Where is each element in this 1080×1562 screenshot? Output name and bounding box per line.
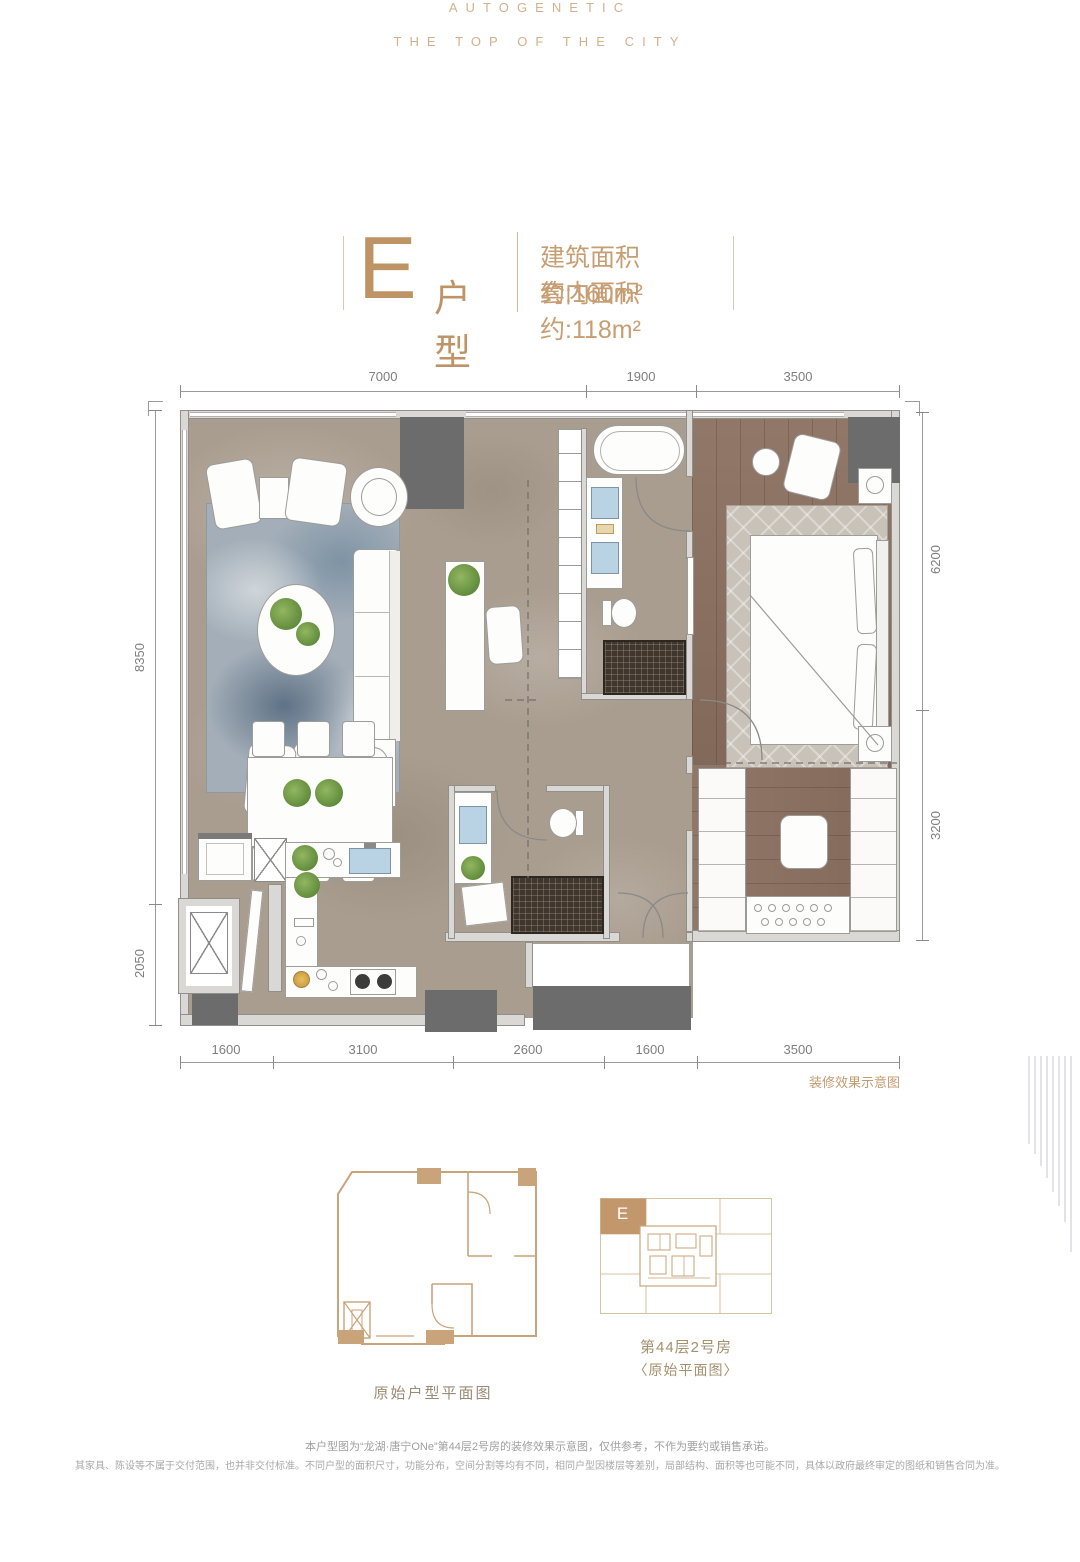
brand-line2: THE TOP OF THE CITY [0, 34, 1080, 49]
key-plan-unit-letter: E [600, 1204, 646, 1224]
dim-top-1900: 1900 [621, 369, 661, 384]
dim-bottom-3500: 3500 [778, 1042, 818, 1057]
dim-tick [697, 1056, 698, 1069]
bath2-wall-top-a [448, 785, 496, 792]
counter-item [296, 936, 306, 946]
bath2-wall-top-b [546, 785, 610, 792]
bath2-wall-right [603, 785, 610, 939]
original-plan-label: 原始户型平面图 [322, 1382, 544, 1403]
sofa-cushion-line-2 [355, 676, 389, 677]
disclaimer-line2: 其家具、陈设等不属于交付范围，也并非交付标准。不同户型的面积尺寸，功能分布，空间… [0, 1457, 1080, 1472]
deco-line [1034, 1056, 1036, 1154]
crop-mark-right [905, 401, 920, 402]
unit-letter: E [358, 222, 417, 314]
shoe-item [796, 904, 804, 912]
counter-item [328, 981, 338, 991]
bath1-wall-right-b [686, 531, 693, 559]
dim-tick [180, 385, 181, 398]
kitchen-plant-1 [292, 845, 318, 871]
cloakroom-shoe-unit [746, 896, 850, 934]
disclaimer-line1: 本户型图为“龙湖·唐宁ONe”第44层2号房的装修效果示意图，仅供参考，不作为要… [0, 1438, 1080, 1454]
counter-item [294, 918, 314, 927]
dim-left-8350: 8350 [132, 632, 147, 684]
kitchen-sink [349, 848, 391, 874]
edge-line-decoration [1028, 1056, 1078, 1266]
deco-line [1040, 1056, 1042, 1166]
bath1-sink-1 [591, 487, 619, 519]
wardrobe-right [850, 768, 897, 932]
dim-right-6200: 6200 [928, 534, 943, 586]
title-rule-left [343, 236, 344, 310]
render-note: 装修效果示意图 [770, 1072, 900, 1091]
study-desk-plant [448, 564, 480, 596]
dim-tick [273, 1056, 274, 1069]
counter-item [323, 848, 335, 860]
washing-machine-top [198, 833, 252, 839]
cloakroom-island [780, 815, 828, 869]
dim-bottom-1600b: 1600 [630, 1042, 670, 1057]
bath1-wall-right-c [686, 634, 693, 700]
dim-line-bottom [180, 1062, 900, 1063]
bath2-shower-mat [511, 876, 604, 934]
column-bottom-core [533, 986, 691, 1030]
bath2-sink [459, 806, 487, 844]
shoe-item [810, 904, 818, 912]
dining-chair-1 [252, 721, 285, 757]
bath1-toilet-bowl [611, 598, 637, 628]
armchair-2 [284, 456, 348, 527]
kitchen-wall-stub [268, 884, 282, 992]
crop-mark-left-v [148, 401, 149, 416]
bath1-wall-right-a [686, 410, 693, 477]
bath2-plant [461, 856, 485, 880]
dim-line-top [180, 391, 900, 392]
deco-line [1070, 1056, 1072, 1252]
counter-item [333, 858, 342, 867]
dim-tick [916, 710, 929, 711]
bedroom-side-table [752, 448, 780, 476]
deco-line [1046, 1056, 1048, 1178]
sofa-back [389, 551, 400, 741]
nightstand-lamp-1 [866, 476, 884, 494]
column-bottom-kitchen [425, 990, 497, 1032]
wall-lobby-left [525, 942, 533, 988]
egg-chair-ring [361, 478, 397, 516]
shoe-item [768, 904, 776, 912]
key-plan-sub-label: 〈原始平面图〉 [586, 1360, 786, 1380]
key-plan-room-label: 第44层2号房 [586, 1336, 786, 1357]
original-plan-drawing [322, 1164, 544, 1360]
title-rule-mid [517, 232, 518, 312]
shoe-item [789, 918, 797, 926]
dim-tick [149, 410, 162, 411]
bedroom-sliding-door [687, 557, 694, 635]
stove-burner-2 [377, 974, 392, 989]
study-chair [485, 605, 524, 665]
bed-headboard [876, 540, 889, 740]
shoe-item [817, 918, 825, 926]
unit-label: 户型 [434, 268, 471, 376]
bathtub-inner [600, 431, 680, 471]
stove-burner-1 [355, 974, 370, 989]
dim-tick [696, 385, 697, 398]
counter-item [316, 969, 327, 980]
key-plan: E 第44层2号房 〈原始平面图〉 [600, 1198, 772, 1319]
dim-right-3200: 3200 [928, 800, 943, 852]
shoe-item [775, 918, 783, 926]
dim-left-2050: 2050 [132, 938, 147, 990]
washing-machine-door [206, 843, 244, 875]
brand-line1: AUTOGENETIC [0, 0, 1080, 15]
deco-line [1058, 1056, 1060, 1206]
elevator-x [190, 912, 228, 974]
dim-tick [916, 940, 929, 941]
bath1-sink-2 [591, 542, 619, 574]
dim-tick [899, 1056, 900, 1069]
dim-tick [916, 412, 929, 413]
dim-tick [586, 385, 587, 398]
window-top-2 [466, 412, 844, 417]
floorplan-page: AUTOGENETIC THE TOP OF THE CITY E 户型 建筑面… [0, 0, 1080, 1562]
nightstand-lamp-2 [866, 734, 884, 752]
dim-line-right [922, 412, 923, 941]
deco-line [1028, 1056, 1030, 1144]
dim-bottom-2600: 2600 [508, 1042, 548, 1057]
kitchen-plant-2 [294, 872, 320, 898]
crop-mark-right-v [919, 401, 920, 416]
title-rule-right [733, 236, 734, 310]
dim-tick [149, 1025, 162, 1026]
bath2-laundry-box [461, 882, 509, 927]
dim-tick [149, 904, 162, 905]
wardrobe-left [698, 768, 746, 932]
dining-chair-3 [342, 721, 375, 757]
dim-bottom-3100: 3100 [343, 1042, 383, 1057]
shoe-item [824, 904, 832, 912]
dining-plant-2 [315, 779, 343, 807]
area-inner: 套内面积约:118m² [540, 274, 641, 346]
coffee-table-plant-2 [296, 622, 320, 646]
kitchen-faucet [364, 843, 376, 848]
sofa-cushion-line-1 [355, 612, 389, 613]
shoe-item [782, 904, 790, 912]
original-plan: 原始户型平面图 [322, 1164, 544, 1365]
dim-top-3500: 3500 [778, 369, 818, 384]
dim-tick [180, 1056, 181, 1069]
dining-chair-2 [297, 721, 330, 757]
cloakroom-wall-left-b [686, 830, 693, 932]
deco-line [1064, 1056, 1066, 1222]
coffee-table-plant-1 [270, 598, 302, 630]
column-top-center [400, 417, 464, 509]
lobby-void [533, 944, 689, 986]
counter-item [293, 971, 310, 988]
bath1-amenity-tray [596, 524, 614, 534]
dim-tick [453, 1056, 454, 1069]
dim-tick [899, 385, 900, 398]
shoe-item [761, 918, 769, 926]
deco-line [1052, 1056, 1054, 1192]
bath1-shower-mat [603, 640, 686, 695]
kitchen-cabinet-x [254, 838, 287, 882]
shoe-item [754, 904, 762, 912]
bath2-toilet-bowl [549, 808, 577, 838]
dim-line-left [155, 410, 156, 1026]
dim-tick [604, 1056, 605, 1069]
crop-mark-left [148, 401, 163, 402]
dining-plant-1 [283, 779, 311, 807]
window-top-1 [190, 412, 396, 417]
dim-bottom-1600a: 1600 [206, 1042, 246, 1057]
dim-top-7000: 7000 [363, 369, 403, 384]
window-left [182, 430, 187, 874]
shoe-item [803, 918, 811, 926]
cloakroom-wall-left-a [686, 756, 693, 774]
